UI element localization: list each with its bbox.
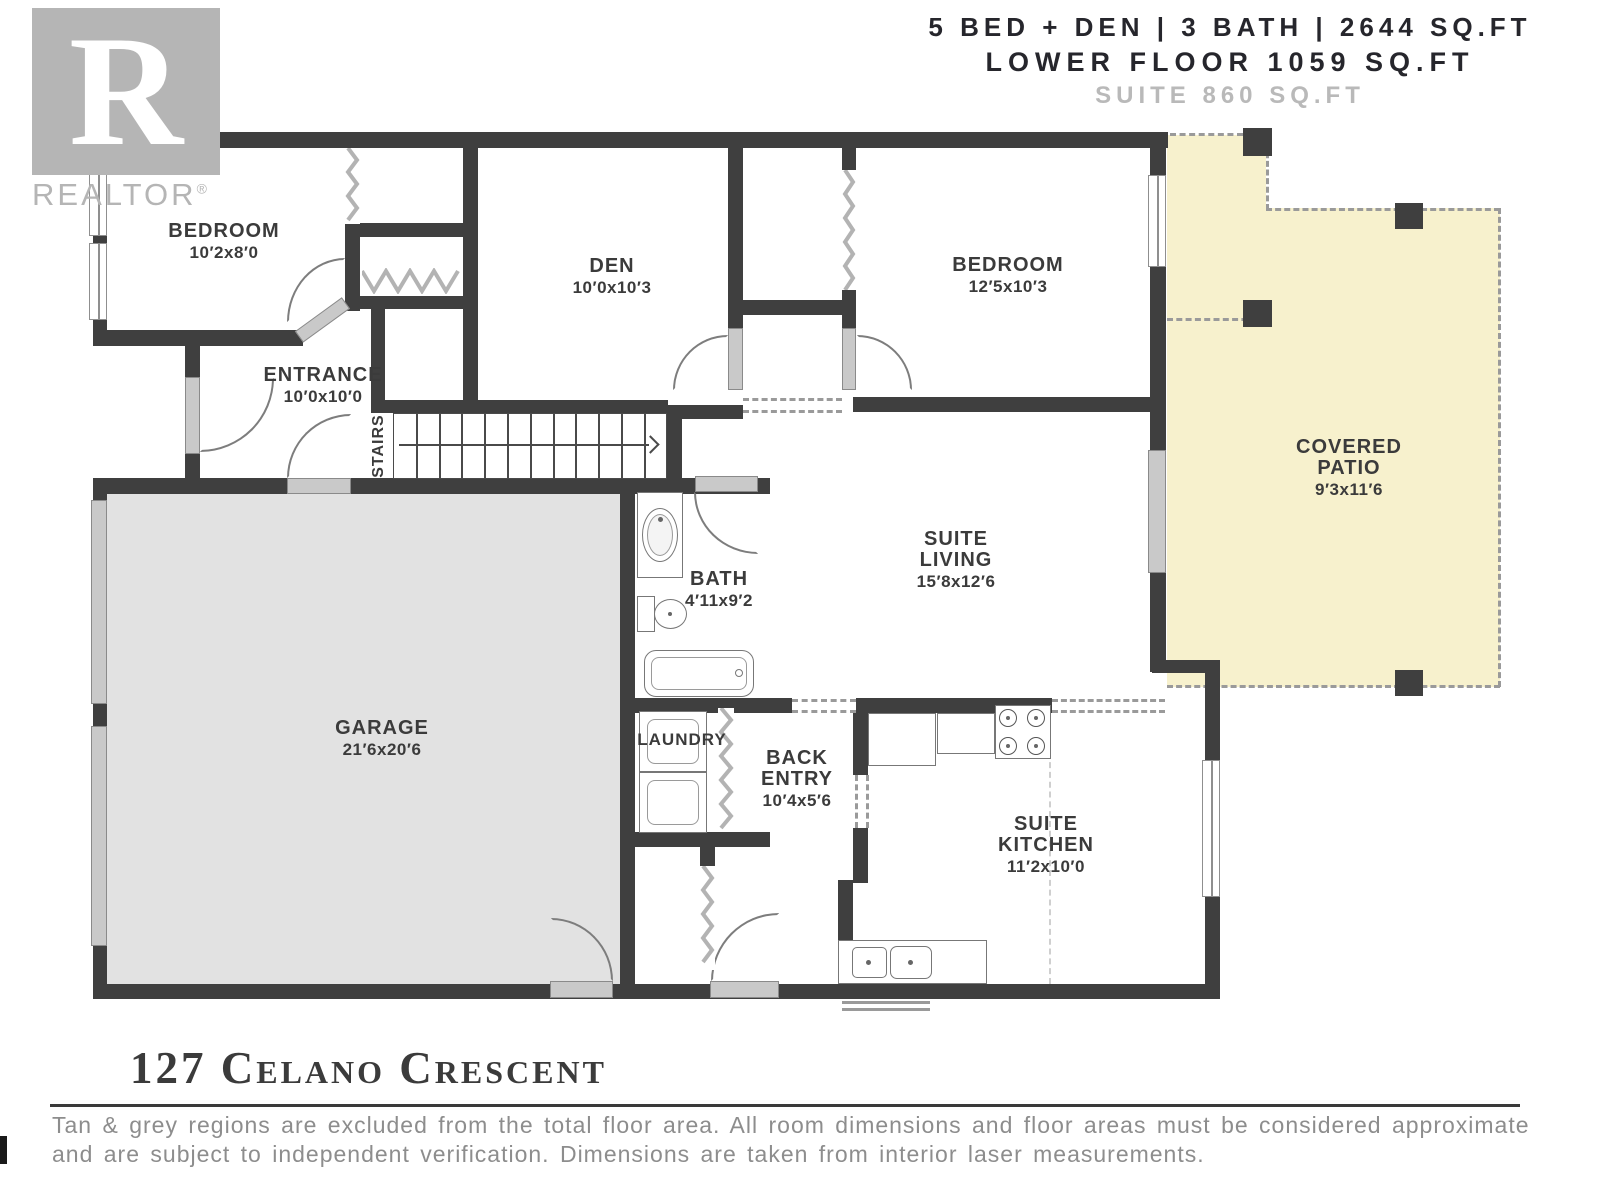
- room-dims: 12′5x10′3: [952, 276, 1063, 298]
- wall: [667, 413, 682, 496]
- wall-panel-symbol: [1148, 450, 1166, 573]
- room-name: SUITE: [998, 814, 1094, 835]
- stove-burner-dot: [1034, 716, 1038, 720]
- opening-dashed: [866, 775, 869, 828]
- wall: [93, 330, 303, 346]
- room-label-suite-kitchen: SUITE KITCHEN 11′2x10′0: [998, 814, 1094, 878]
- room-dims: 10′0x10′0: [263, 386, 382, 408]
- stove-burner-dot: [1006, 716, 1010, 720]
- opening-dashed: [1052, 710, 1165, 713]
- disclaimer-line2: and are subject to independent verificat…: [52, 1141, 1205, 1168]
- window-symbol: [1202, 760, 1220, 897]
- door-arc: [673, 335, 728, 390]
- window-symbol: [1148, 175, 1166, 267]
- floor-plan-page: BEDROOM 10′2x8′0 DEN 10′0x10′3 BEDROOM 1…: [0, 0, 1600, 1200]
- patio-edge-dashed: [1498, 208, 1501, 687]
- wall: [1205, 895, 1220, 999]
- door-symbol: [550, 981, 613, 998]
- door-symbol: [710, 981, 779, 998]
- stair-tread-line: [416, 413, 418, 479]
- opening-dashed: [855, 775, 858, 828]
- closet-door-zigzag: [842, 170, 856, 290]
- door-symbol: [185, 377, 200, 454]
- stair-tread-line: [575, 413, 577, 479]
- dryer-door: [647, 780, 699, 825]
- room-label-entrance: ENTRANCE 10′0x10′0: [263, 365, 382, 408]
- registered-mark: ®: [197, 181, 210, 197]
- room-name: LAUNDRY: [637, 730, 726, 750]
- plan-header: 5 BED + DEN | 3 BATH | 2644 SQ.FT LOWER …: [900, 10, 1560, 112]
- room-label-garage: GARAGE 21′6x20′6: [335, 718, 429, 761]
- wall-panel-symbol: [91, 500, 107, 704]
- opening-dashed: [743, 398, 842, 401]
- wall: [1150, 148, 1166, 177]
- sink-drain-dot: [866, 960, 871, 965]
- stair-tread-line: [507, 413, 509, 479]
- kitchen-counter: [868, 713, 936, 766]
- wall: [345, 223, 360, 311]
- door-symbol: [287, 478, 351, 494]
- bathtub-inner: [651, 657, 747, 690]
- wall: [1150, 265, 1166, 452]
- room-label-den: DEN 10′0x10′3: [573, 256, 652, 299]
- room-name: KITCHEN: [998, 835, 1094, 856]
- patio-floor: [1167, 135, 1266, 687]
- opening-dashed: [743, 410, 842, 413]
- wall: [853, 828, 868, 883]
- room-dims: 10′0x10′3: [573, 277, 652, 299]
- door-arc: [287, 258, 345, 322]
- stair-tread-line: [553, 413, 555, 479]
- stair-tread-line: [530, 413, 532, 479]
- room-name: PATIO: [1296, 458, 1402, 479]
- room-dims: 11′2x10′0: [998, 856, 1094, 878]
- wall: [1150, 571, 1166, 672]
- wall: [93, 984, 1220, 999]
- window-bay-lines: [842, 1008, 930, 1011]
- realtor-brand-text: REALTOR®: [32, 177, 220, 213]
- wall: [838, 880, 853, 942]
- closet-door-zigzag: [345, 148, 360, 224]
- door-symbol: [695, 476, 758, 492]
- room-dims: 4′11x9′2: [685, 590, 753, 612]
- door-arc: [857, 335, 912, 390]
- closet-door-zigzag: [362, 268, 460, 294]
- room-label-covered-patio: COVERED PATIO 9′3x11′6: [1296, 437, 1402, 501]
- patio-edge-dashed: [1170, 133, 1243, 136]
- stair-tread-line: [461, 413, 463, 479]
- room-dims: 21′6x20′6: [335, 739, 429, 761]
- room-dims: 9′3x11′6: [1296, 479, 1402, 501]
- brand-word: REALTOR: [32, 177, 197, 212]
- room-name: COVERED: [1296, 437, 1402, 458]
- closet-door-zigzag: [700, 866, 715, 970]
- room-name: DEN: [573, 256, 652, 277]
- door-arc: [694, 492, 758, 554]
- header-suite-area: SUITE 860 SQ.FT: [900, 80, 1560, 112]
- disclaimer-line1: Tan & grey regions are excluded from the…: [52, 1112, 1530, 1139]
- wall: [842, 145, 856, 172]
- header-beds-baths-area: 5 BED + DEN | 3 BATH | 2644 SQ.FT: [900, 10, 1560, 45]
- sink-faucet-dot: [658, 517, 663, 522]
- room-dims: 10′4x5′6: [761, 790, 833, 812]
- opening-dashed: [792, 710, 856, 713]
- room-label-bedroom2: BEDROOM 12′5x10′3: [952, 255, 1063, 298]
- wall: [700, 847, 715, 868]
- patio-post: [1243, 128, 1272, 156]
- door-arc: [287, 414, 351, 478]
- room-label-bedroom1: BEDROOM 10′2x8′0: [168, 221, 279, 264]
- room-name: BATH: [685, 569, 753, 590]
- room-label-laundry: LAUNDRY: [637, 730, 726, 750]
- room-name: LIVING: [917, 550, 996, 571]
- patio-post: [1395, 670, 1423, 696]
- room-name: BEDROOM: [952, 255, 1063, 276]
- sink-drain-dot: [908, 960, 913, 965]
- wall: [93, 132, 1168, 148]
- room-label-stairs: STAIRS: [370, 411, 390, 481]
- page-corner-mark: [0, 1136, 7, 1164]
- wall-panel-symbol: [91, 726, 107, 946]
- bathtub-drain: [735, 669, 743, 677]
- opening-dashed: [1052, 699, 1165, 702]
- wall: [728, 145, 743, 328]
- wall: [620, 478, 635, 999]
- patio-post: [1395, 203, 1423, 229]
- room-name: ENTRANCE: [263, 365, 382, 386]
- opening-dashed: [792, 699, 856, 702]
- toilet-tank: [637, 596, 655, 632]
- wall: [635, 832, 770, 847]
- room-label-bath: BATH 4′11x9′2: [685, 569, 753, 612]
- stair-tread-line: [621, 413, 623, 479]
- stove-burner-dot: [1006, 744, 1010, 748]
- wall: [345, 296, 478, 309]
- room-label-suite-living: SUITE LIVING 15′8x12′6: [917, 529, 996, 593]
- room-name: BACK: [761, 748, 833, 769]
- wall: [345, 223, 478, 237]
- wall: [1205, 660, 1220, 762]
- stair-direction-line: [399, 444, 649, 446]
- wall: [853, 713, 868, 775]
- patio-edge-dashed: [1266, 208, 1500, 211]
- wall: [842, 288, 856, 328]
- room-name: BEDROOM: [168, 221, 279, 242]
- door-arc: [711, 913, 779, 981]
- wall: [463, 145, 478, 419]
- footer-divider: [50, 1104, 1520, 1107]
- property-address: 127 Celano Crescent: [130, 1042, 607, 1094]
- stove-burner-dot: [1034, 744, 1038, 748]
- room-label-back-entry: BACK ENTRY 10′4x5′6: [761, 748, 833, 812]
- closet-door-zigzag: [718, 708, 734, 832]
- door-symbol: [842, 328, 856, 390]
- kitchen-cabinet: [937, 713, 995, 754]
- realtor-logo-icon: R: [32, 8, 220, 175]
- room-dims: 15′8x12′6: [917, 571, 996, 593]
- wall: [853, 397, 1166, 412]
- door-symbol: [728, 328, 743, 390]
- stair-tread-line: [484, 413, 486, 479]
- room-name: ENTRY: [761, 769, 833, 790]
- window-symbol: [89, 243, 107, 320]
- room-name: GARAGE: [335, 718, 429, 739]
- toilet-dot: [668, 612, 672, 616]
- stair-tread-line: [598, 413, 600, 479]
- logo-letter: R: [69, 17, 183, 167]
- header-lower-floor-area: LOWER FLOOR 1059 SQ.FT: [900, 45, 1560, 80]
- room-dims: 10′2x8′0: [168, 242, 279, 264]
- room-name: SUITE: [917, 529, 996, 550]
- realtor-logo: R REALTOR®: [32, 8, 220, 213]
- stair-tread-line: [439, 413, 441, 479]
- window-bay-lines: [842, 1001, 930, 1004]
- patio-post: [1243, 300, 1272, 327]
- wall: [743, 300, 843, 315]
